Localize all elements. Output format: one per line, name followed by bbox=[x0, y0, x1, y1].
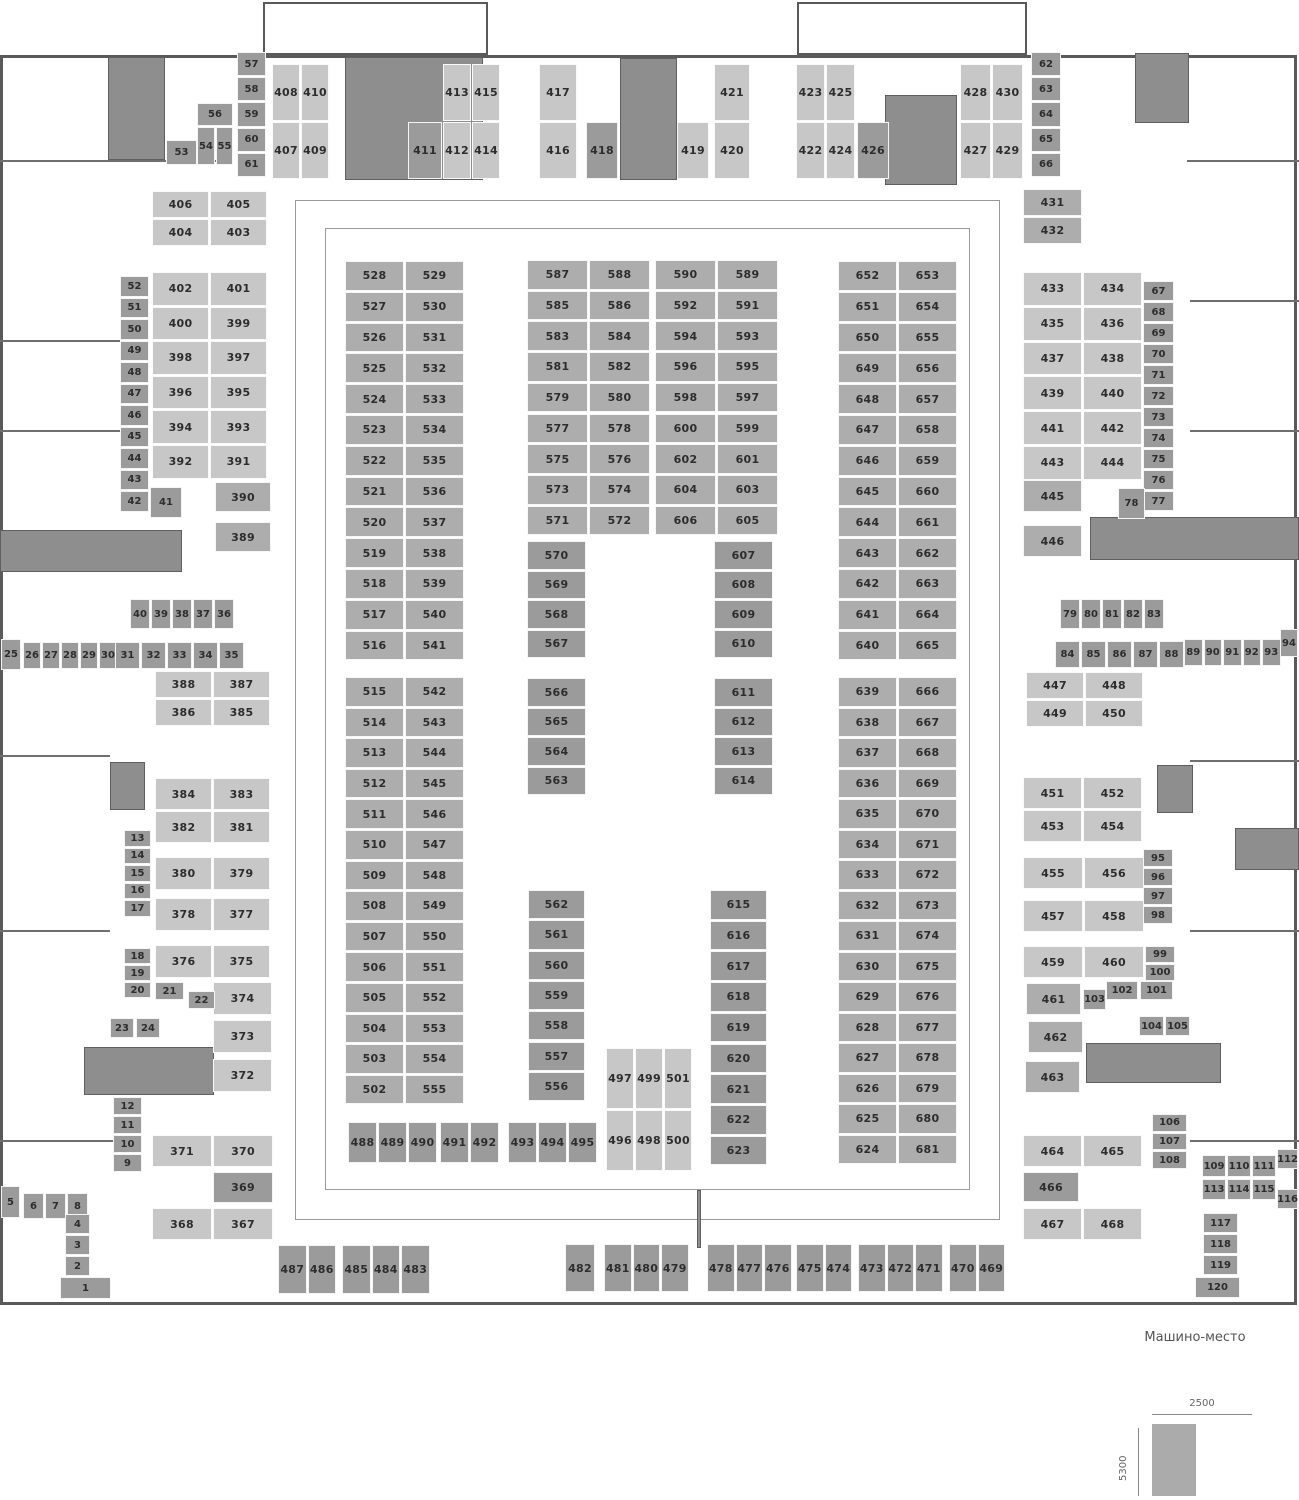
stall-404[interactable]: 404 bbox=[152, 219, 209, 246]
stall-419[interactable]: 419 bbox=[677, 122, 709, 179]
stall-73[interactable]: 73 bbox=[1143, 407, 1174, 427]
stall-518[interactable]: 518 bbox=[345, 569, 404, 599]
stall-466[interactable]: 466 bbox=[1023, 1172, 1079, 1202]
stall-628[interactable]: 628 bbox=[838, 1013, 897, 1043]
stall-678[interactable]: 678 bbox=[898, 1043, 957, 1073]
stall-482[interactable]: 482 bbox=[565, 1244, 595, 1292]
stall-369[interactable]: 369 bbox=[213, 1172, 273, 1203]
stall-664[interactable]: 664 bbox=[898, 600, 957, 630]
stall-42[interactable]: 42 bbox=[120, 491, 149, 512]
stall-35[interactable]: 35 bbox=[219, 642, 244, 669]
stall-373[interactable]: 373 bbox=[213, 1020, 272, 1053]
stall-78[interactable]: 78 bbox=[1118, 488, 1145, 519]
stall-483[interactable]: 483 bbox=[401, 1245, 430, 1294]
stall-541[interactable]: 541 bbox=[405, 631, 464, 661]
stall-63[interactable]: 63 bbox=[1031, 77, 1061, 101]
stall-512[interactable]: 512 bbox=[345, 769, 404, 799]
stall-50[interactable]: 50 bbox=[120, 319, 149, 340]
stall-673[interactable]: 673 bbox=[898, 891, 957, 921]
stall-580[interactable]: 580 bbox=[589, 383, 650, 413]
stall-489[interactable]: 489 bbox=[378, 1122, 407, 1163]
stall-667[interactable]: 667 bbox=[898, 708, 957, 738]
stall-423[interactable]: 423 bbox=[796, 64, 825, 121]
stall-60[interactable]: 60 bbox=[237, 128, 266, 152]
stall-574[interactable]: 574 bbox=[589, 475, 650, 505]
stall-516[interactable]: 516 bbox=[345, 631, 404, 661]
stall-444[interactable]: 444 bbox=[1083, 446, 1142, 480]
stall-16[interactable]: 16 bbox=[124, 883, 151, 900]
stall-443[interactable]: 443 bbox=[1023, 446, 1082, 480]
stall-20[interactable]: 20 bbox=[124, 982, 151, 998]
stall-33[interactable]: 33 bbox=[167, 642, 192, 669]
stall-402[interactable]: 402 bbox=[152, 272, 209, 306]
stall-494[interactable]: 494 bbox=[538, 1122, 567, 1163]
stall-426[interactable]: 426 bbox=[857, 122, 889, 179]
stall-439[interactable]: 439 bbox=[1023, 376, 1082, 410]
stall-19[interactable]: 19 bbox=[124, 965, 151, 981]
stall-595[interactable]: 595 bbox=[717, 352, 778, 382]
stall-24[interactable]: 24 bbox=[136, 1018, 160, 1038]
stall-663[interactable]: 663 bbox=[898, 569, 957, 599]
stall-408[interactable]: 408 bbox=[272, 64, 300, 121]
stall-377[interactable]: 377 bbox=[213, 898, 270, 931]
stall-388[interactable]: 388 bbox=[155, 671, 212, 698]
stall-77[interactable]: 77 bbox=[1143, 491, 1174, 511]
stall-631[interactable]: 631 bbox=[838, 921, 897, 951]
stall-100[interactable]: 100 bbox=[1145, 964, 1175, 981]
stall-644[interactable]: 644 bbox=[838, 507, 897, 537]
stall-564[interactable]: 564 bbox=[527, 737, 586, 766]
stall-71[interactable]: 71 bbox=[1143, 365, 1174, 385]
stall-48[interactable]: 48 bbox=[120, 362, 149, 383]
stall-581[interactable]: 581 bbox=[527, 352, 588, 382]
stall-67[interactable]: 67 bbox=[1143, 281, 1174, 301]
stall-620[interactable]: 620 bbox=[710, 1044, 767, 1074]
stall-422[interactable]: 422 bbox=[796, 122, 825, 179]
stall-95[interactable]: 95 bbox=[1143, 849, 1173, 867]
stall-382[interactable]: 382 bbox=[155, 811, 212, 843]
stall-505[interactable]: 505 bbox=[345, 983, 404, 1013]
stall-435[interactable]: 435 bbox=[1023, 307, 1082, 341]
stall-558[interactable]: 558 bbox=[528, 1011, 585, 1040]
stall-592[interactable]: 592 bbox=[655, 291, 716, 321]
stall-18[interactable]: 18 bbox=[124, 948, 151, 964]
stall-1[interactable]: 1 bbox=[60, 1277, 111, 1299]
stall-594[interactable]: 594 bbox=[655, 321, 716, 351]
stall-427[interactable]: 427 bbox=[960, 122, 991, 179]
stall-28[interactable]: 28 bbox=[61, 642, 79, 669]
stall-625[interactable]: 625 bbox=[838, 1104, 897, 1134]
stall-578[interactable]: 578 bbox=[589, 414, 650, 444]
stall-614[interactable]: 614 bbox=[714, 767, 773, 796]
stall-669[interactable]: 669 bbox=[898, 769, 957, 799]
stall-64[interactable]: 64 bbox=[1031, 102, 1061, 126]
stall-474[interactable]: 474 bbox=[825, 1244, 853, 1292]
stall-430[interactable]: 430 bbox=[992, 64, 1023, 121]
stall-587[interactable]: 587 bbox=[527, 260, 588, 290]
stall-38[interactable]: 38 bbox=[172, 599, 192, 629]
stall-56[interactable]: 56 bbox=[197, 103, 233, 126]
stall-576[interactable]: 576 bbox=[589, 444, 650, 474]
stall-12[interactable]: 12 bbox=[113, 1097, 142, 1115]
stall-544[interactable]: 544 bbox=[405, 738, 464, 768]
stall-74[interactable]: 74 bbox=[1143, 428, 1174, 448]
stall-10[interactable]: 10 bbox=[113, 1135, 142, 1153]
stall-31[interactable]: 31 bbox=[115, 642, 140, 669]
stall-108[interactable]: 108 bbox=[1152, 1151, 1187, 1169]
stall-55[interactable]: 55 bbox=[216, 127, 233, 165]
stall-457[interactable]: 457 bbox=[1023, 900, 1083, 932]
stall-446[interactable]: 446 bbox=[1023, 525, 1082, 557]
stall-459[interactable]: 459 bbox=[1023, 946, 1083, 978]
stall-480[interactable]: 480 bbox=[633, 1244, 661, 1292]
stall-98[interactable]: 98 bbox=[1143, 906, 1173, 924]
stall-34[interactable]: 34 bbox=[193, 642, 218, 669]
stall-469[interactable]: 469 bbox=[978, 1244, 1006, 1292]
stall-604[interactable]: 604 bbox=[655, 475, 716, 505]
stall-654[interactable]: 654 bbox=[898, 292, 957, 322]
stall-2[interactable]: 2 bbox=[65, 1256, 90, 1276]
stall-69[interactable]: 69 bbox=[1143, 323, 1174, 343]
stall-52[interactable]: 52 bbox=[120, 276, 149, 297]
stall-658[interactable]: 658 bbox=[898, 415, 957, 445]
stall-417[interactable]: 417 bbox=[539, 64, 577, 121]
stall-91[interactable]: 91 bbox=[1223, 639, 1242, 666]
stall-671[interactable]: 671 bbox=[898, 830, 957, 860]
stall-523[interactable]: 523 bbox=[345, 415, 404, 445]
stall-529[interactable]: 529 bbox=[405, 261, 464, 291]
stall-585[interactable]: 585 bbox=[527, 291, 588, 321]
stall-591[interactable]: 591 bbox=[717, 291, 778, 321]
stall-563[interactable]: 563 bbox=[527, 767, 586, 796]
stall-383[interactable]: 383 bbox=[213, 778, 270, 810]
stall-680[interactable]: 680 bbox=[898, 1104, 957, 1134]
stall-525[interactable]: 525 bbox=[345, 353, 404, 383]
stall-465[interactable]: 465 bbox=[1083, 1135, 1142, 1167]
stall-113[interactable]: 113 bbox=[1202, 1179, 1226, 1200]
stall-672[interactable]: 672 bbox=[898, 860, 957, 890]
stall-394[interactable]: 394 bbox=[152, 410, 209, 444]
stall-615[interactable]: 615 bbox=[710, 890, 767, 920]
stall-554[interactable]: 554 bbox=[405, 1044, 464, 1074]
stall-4[interactable]: 4 bbox=[65, 1214, 90, 1234]
stall-610[interactable]: 610 bbox=[714, 630, 773, 659]
stall-391[interactable]: 391 bbox=[210, 445, 267, 479]
stall-545[interactable]: 545 bbox=[405, 769, 464, 799]
stall-80[interactable]: 80 bbox=[1081, 599, 1101, 629]
stall-119[interactable]: 119 bbox=[1203, 1255, 1238, 1275]
stall-104[interactable]: 104 bbox=[1139, 1016, 1164, 1036]
stall-455[interactable]: 455 bbox=[1023, 857, 1083, 889]
stall-638[interactable]: 638 bbox=[838, 708, 897, 738]
stall-43[interactable]: 43 bbox=[120, 470, 149, 491]
stall-89[interactable]: 89 bbox=[1184, 639, 1203, 666]
stall-96[interactable]: 96 bbox=[1143, 868, 1173, 886]
stall-491[interactable]: 491 bbox=[440, 1122, 469, 1163]
stall-647[interactable]: 647 bbox=[838, 415, 897, 445]
stall-514[interactable]: 514 bbox=[345, 708, 404, 738]
stall-503[interactable]: 503 bbox=[345, 1044, 404, 1074]
stall-406[interactable]: 406 bbox=[152, 191, 209, 218]
stall-517[interactable]: 517 bbox=[345, 600, 404, 630]
stall-642[interactable]: 642 bbox=[838, 569, 897, 599]
stall-17[interactable]: 17 bbox=[124, 900, 151, 917]
stall-536[interactable]: 536 bbox=[405, 477, 464, 507]
stall-116[interactable]: 116 bbox=[1277, 1189, 1298, 1209]
stall-562[interactable]: 562 bbox=[528, 890, 585, 919]
stall-645[interactable]: 645 bbox=[838, 477, 897, 507]
stall-370[interactable]: 370 bbox=[213, 1135, 273, 1167]
stall-626[interactable]: 626 bbox=[838, 1074, 897, 1104]
stall-608[interactable]: 608 bbox=[714, 571, 773, 600]
stall-530[interactable]: 530 bbox=[405, 292, 464, 322]
stall-441[interactable]: 441 bbox=[1023, 411, 1082, 445]
stall-500[interactable]: 500 bbox=[664, 1110, 692, 1171]
stall-112[interactable]: 112 bbox=[1277, 1149, 1298, 1169]
stall-461[interactable]: 461 bbox=[1026, 983, 1081, 1015]
stall-550[interactable]: 550 bbox=[405, 922, 464, 952]
stall-528[interactable]: 528 bbox=[345, 261, 404, 291]
stall-463[interactable]: 463 bbox=[1025, 1061, 1080, 1093]
stall-600[interactable]: 600 bbox=[655, 414, 716, 444]
stall-583[interactable]: 583 bbox=[527, 321, 588, 351]
stall-29[interactable]: 29 bbox=[80, 642, 98, 669]
stall-107[interactable]: 107 bbox=[1152, 1133, 1187, 1151]
stall-636[interactable]: 636 bbox=[838, 769, 897, 799]
stall-11[interactable]: 11 bbox=[113, 1116, 142, 1134]
stall-39[interactable]: 39 bbox=[151, 599, 171, 629]
stall-61[interactable]: 61 bbox=[237, 153, 266, 177]
stall-538[interactable]: 538 bbox=[405, 538, 464, 568]
stall-72[interactable]: 72 bbox=[1143, 386, 1174, 406]
stall-405[interactable]: 405 bbox=[210, 191, 267, 218]
stall-15[interactable]: 15 bbox=[124, 865, 151, 882]
stall-79[interactable]: 79 bbox=[1060, 599, 1080, 629]
stall-54[interactable]: 54 bbox=[197, 127, 215, 165]
stall-434[interactable]: 434 bbox=[1083, 272, 1142, 306]
stall-589[interactable]: 589 bbox=[717, 260, 778, 290]
stall-473[interactable]: 473 bbox=[858, 1244, 886, 1292]
stall-384[interactable]: 384 bbox=[155, 778, 212, 810]
stall-484[interactable]: 484 bbox=[372, 1245, 401, 1294]
stall-9[interactable]: 9 bbox=[113, 1154, 142, 1172]
stall-36[interactable]: 36 bbox=[214, 599, 234, 629]
stall-651[interactable]: 651 bbox=[838, 292, 897, 322]
stall-670[interactable]: 670 bbox=[898, 799, 957, 829]
stall-488[interactable]: 488 bbox=[348, 1122, 377, 1163]
stall-47[interactable]: 47 bbox=[120, 384, 149, 405]
stall-84[interactable]: 84 bbox=[1055, 641, 1080, 668]
stall-476[interactable]: 476 bbox=[764, 1244, 792, 1292]
stall-372[interactable]: 372 bbox=[213, 1059, 272, 1092]
stall-13[interactable]: 13 bbox=[124, 830, 151, 847]
stall-590[interactable]: 590 bbox=[655, 260, 716, 290]
stall-652[interactable]: 652 bbox=[838, 261, 897, 291]
stall-619[interactable]: 619 bbox=[710, 1013, 767, 1043]
stall-53[interactable]: 53 bbox=[166, 140, 197, 165]
stall-643[interactable]: 643 bbox=[838, 538, 897, 568]
stall-462[interactable]: 462 bbox=[1028, 1021, 1083, 1053]
stall-414[interactable]: 414 bbox=[472, 122, 500, 179]
stall-546[interactable]: 546 bbox=[405, 799, 464, 829]
stall-657[interactable]: 657 bbox=[898, 384, 957, 414]
stall-557[interactable]: 557 bbox=[528, 1042, 585, 1071]
stall-573[interactable]: 573 bbox=[527, 475, 588, 505]
stall-93[interactable]: 93 bbox=[1262, 639, 1281, 666]
stall-586[interactable]: 586 bbox=[589, 291, 650, 321]
stall-392[interactable]: 392 bbox=[152, 445, 209, 479]
stall-7[interactable]: 7 bbox=[45, 1193, 66, 1219]
stall-411[interactable]: 411 bbox=[408, 122, 442, 179]
stall-606[interactable]: 606 bbox=[655, 506, 716, 536]
stall-521[interactable]: 521 bbox=[345, 477, 404, 507]
stall-447[interactable]: 447 bbox=[1026, 672, 1084, 699]
stall-681[interactable]: 681 bbox=[898, 1135, 957, 1165]
stall-539[interactable]: 539 bbox=[405, 569, 464, 599]
stall-635[interactable]: 635 bbox=[838, 799, 897, 829]
stall-540[interactable]: 540 bbox=[405, 600, 464, 630]
stall-520[interactable]: 520 bbox=[345, 507, 404, 537]
stall-85[interactable]: 85 bbox=[1081, 641, 1106, 668]
stall-436[interactable]: 436 bbox=[1083, 307, 1142, 341]
stall-622[interactable]: 622 bbox=[710, 1105, 767, 1135]
stall-507[interactable]: 507 bbox=[345, 922, 404, 952]
stall-659[interactable]: 659 bbox=[898, 446, 957, 476]
stall-551[interactable]: 551 bbox=[405, 952, 464, 982]
stall-567[interactable]: 567 bbox=[527, 630, 586, 659]
stall-68[interactable]: 68 bbox=[1143, 302, 1174, 322]
stall-502[interactable]: 502 bbox=[345, 1075, 404, 1105]
stall-421[interactable]: 421 bbox=[714, 64, 750, 121]
stall-627[interactable]: 627 bbox=[838, 1043, 897, 1073]
stall-549[interactable]: 549 bbox=[405, 891, 464, 921]
stall-531[interactable]: 531 bbox=[405, 323, 464, 353]
stall-57[interactable]: 57 bbox=[237, 52, 266, 76]
stall-471[interactable]: 471 bbox=[915, 1244, 943, 1292]
stall-560[interactable]: 560 bbox=[528, 951, 585, 980]
stall-582[interactable]: 582 bbox=[589, 352, 650, 382]
stall-58[interactable]: 58 bbox=[237, 77, 266, 101]
stall-584[interactable]: 584 bbox=[589, 321, 650, 351]
stall-601[interactable]: 601 bbox=[717, 444, 778, 474]
stall-561[interactable]: 561 bbox=[528, 920, 585, 949]
stall-51[interactable]: 51 bbox=[120, 298, 149, 319]
stall-666[interactable]: 666 bbox=[898, 677, 957, 707]
stall-32[interactable]: 32 bbox=[141, 642, 166, 669]
stall-378[interactable]: 378 bbox=[155, 898, 212, 931]
stall-577[interactable]: 577 bbox=[527, 414, 588, 444]
stall-607[interactable]: 607 bbox=[714, 541, 773, 570]
stall-481[interactable]: 481 bbox=[604, 1244, 632, 1292]
stall-559[interactable]: 559 bbox=[528, 981, 585, 1010]
stall-468[interactable]: 468 bbox=[1083, 1208, 1142, 1240]
stall-665[interactable]: 665 bbox=[898, 631, 957, 661]
stall-110[interactable]: 110 bbox=[1227, 1155, 1251, 1177]
stall-87[interactable]: 87 bbox=[1133, 641, 1158, 668]
stall-115[interactable]: 115 bbox=[1252, 1179, 1276, 1200]
stall-453[interactable]: 453 bbox=[1023, 810, 1082, 842]
stall-470[interactable]: 470 bbox=[949, 1244, 977, 1292]
stall-668[interactable]: 668 bbox=[898, 738, 957, 768]
stall-556[interactable]: 556 bbox=[528, 1072, 585, 1101]
stall-70[interactable]: 70 bbox=[1143, 344, 1174, 364]
stall-385[interactable]: 385 bbox=[213, 699, 270, 726]
stall-5[interactable]: 5 bbox=[1, 1186, 20, 1218]
stall-553[interactable]: 553 bbox=[405, 1014, 464, 1044]
stall-504[interactable]: 504 bbox=[345, 1014, 404, 1044]
stall-451[interactable]: 451 bbox=[1023, 777, 1082, 809]
stall-472[interactable]: 472 bbox=[887, 1244, 915, 1292]
stall-83[interactable]: 83 bbox=[1144, 599, 1164, 629]
stall-400[interactable]: 400 bbox=[152, 307, 209, 341]
stall-371[interactable]: 371 bbox=[152, 1135, 212, 1167]
stall-641[interactable]: 641 bbox=[838, 600, 897, 630]
stall-429[interactable]: 429 bbox=[992, 122, 1023, 179]
stall-14[interactable]: 14 bbox=[124, 848, 151, 865]
stall-424[interactable]: 424 bbox=[826, 122, 855, 179]
stall-117[interactable]: 117 bbox=[1203, 1213, 1238, 1233]
stall-497[interactable]: 497 bbox=[606, 1048, 634, 1109]
stall-389[interactable]: 389 bbox=[215, 522, 271, 552]
stall-637[interactable]: 637 bbox=[838, 738, 897, 768]
stall-593[interactable]: 593 bbox=[717, 321, 778, 351]
stall-533[interactable]: 533 bbox=[405, 384, 464, 414]
stall-509[interactable]: 509 bbox=[345, 861, 404, 891]
stall-543[interactable]: 543 bbox=[405, 708, 464, 738]
stall-45[interactable]: 45 bbox=[120, 427, 149, 448]
stall-395[interactable]: 395 bbox=[210, 376, 267, 410]
stall-448[interactable]: 448 bbox=[1085, 672, 1143, 699]
stall-454[interactable]: 454 bbox=[1083, 810, 1142, 842]
stall-511[interactable]: 511 bbox=[345, 799, 404, 829]
stall-513[interactable]: 513 bbox=[345, 738, 404, 768]
stall-648[interactable]: 648 bbox=[838, 384, 897, 414]
stall-381[interactable]: 381 bbox=[213, 811, 270, 843]
stall-569[interactable]: 569 bbox=[527, 571, 586, 600]
stall-413[interactable]: 413 bbox=[443, 64, 471, 121]
stall-485[interactable]: 485 bbox=[342, 1245, 371, 1294]
stall-629[interactable]: 629 bbox=[838, 982, 897, 1012]
stall-26[interactable]: 26 bbox=[23, 642, 41, 669]
stall-390[interactable]: 390 bbox=[215, 482, 271, 512]
stall-602[interactable]: 602 bbox=[655, 444, 716, 474]
stall-118[interactable]: 118 bbox=[1203, 1234, 1238, 1254]
stall-432[interactable]: 432 bbox=[1023, 217, 1082, 244]
stall-532[interactable]: 532 bbox=[405, 353, 464, 383]
stall-425[interactable]: 425 bbox=[826, 64, 855, 121]
stall-675[interactable]: 675 bbox=[898, 952, 957, 982]
stall-92[interactable]: 92 bbox=[1243, 639, 1262, 666]
stall-40[interactable]: 40 bbox=[130, 599, 150, 629]
stall-609[interactable]: 609 bbox=[714, 600, 773, 629]
stall-616[interactable]: 616 bbox=[710, 921, 767, 951]
stall-522[interactable]: 522 bbox=[345, 446, 404, 476]
stall-442[interactable]: 442 bbox=[1083, 411, 1142, 445]
stall-6[interactable]: 6 bbox=[23, 1193, 44, 1219]
stall-552[interactable]: 552 bbox=[405, 983, 464, 1013]
stall-374[interactable]: 374 bbox=[213, 982, 272, 1015]
stall-519[interactable]: 519 bbox=[345, 538, 404, 568]
stall-410[interactable]: 410 bbox=[301, 64, 329, 121]
stall-409[interactable]: 409 bbox=[301, 122, 329, 179]
stall-508[interactable]: 508 bbox=[345, 891, 404, 921]
stall-418[interactable]: 418 bbox=[586, 122, 618, 179]
stall-420[interactable]: 420 bbox=[714, 122, 750, 179]
stall-650[interactable]: 650 bbox=[838, 323, 897, 353]
stall-495[interactable]: 495 bbox=[568, 1122, 597, 1163]
stall-458[interactable]: 458 bbox=[1084, 900, 1144, 932]
stall-25[interactable]: 25 bbox=[1, 639, 21, 670]
